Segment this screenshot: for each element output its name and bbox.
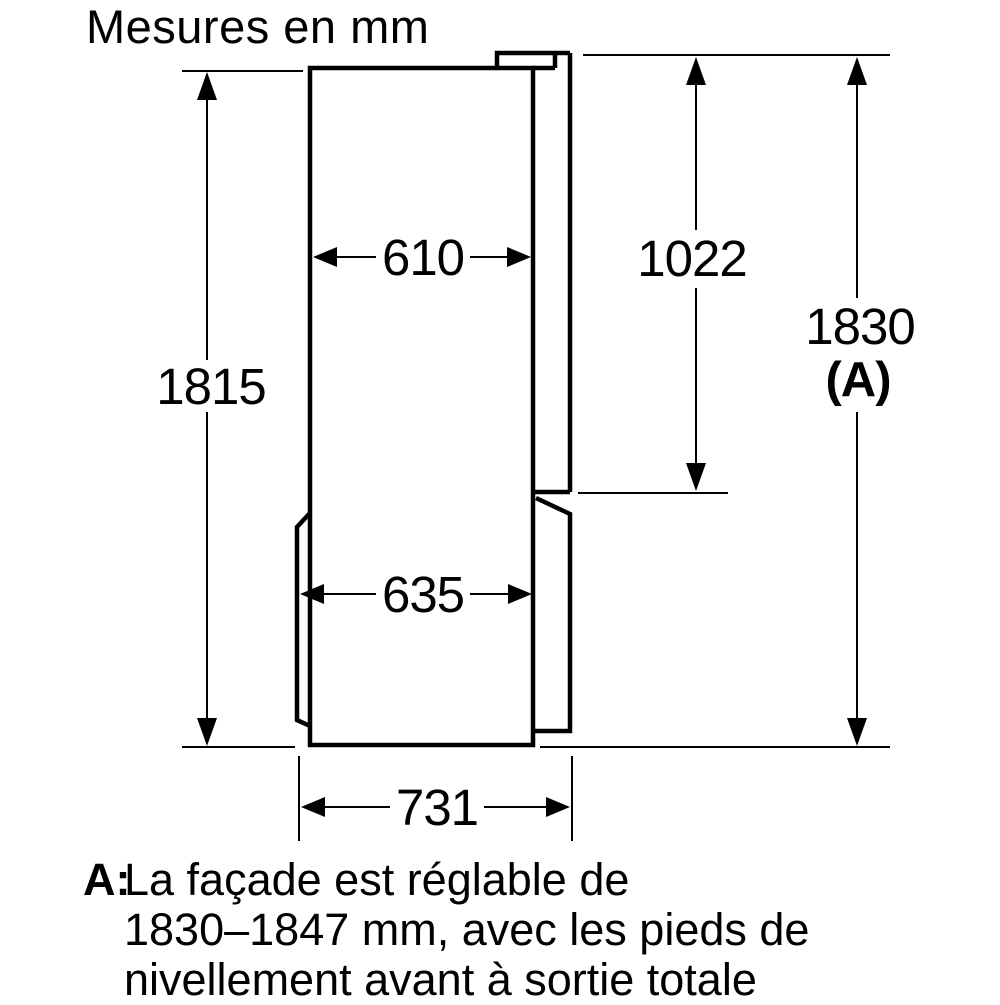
cabinet-body [310,68,533,745]
dimension-appliance-height: 1830 (A) [805,57,914,746]
refrigerator-outline [297,53,570,745]
footnote-text: La façade est réglable de 1830–1847 mm, … [124,855,809,1005]
dimension-cabinet-height: 1815 [156,72,265,746]
dimension-depth-without-door: 635 [300,566,532,623]
dim-label-635: 635 [382,566,464,623]
dimension-diagram: 1815 610 1022 1830 (A) [0,0,1000,1000]
arrow-right-icon [507,247,531,267]
footnote-line: 1830–1847 mm, avec les pieds de [124,905,809,955]
footnote: A: La façade est réglable de 1830–1847 m… [83,855,809,1005]
measurement-diagram-page: Mesures en mm [0,0,1000,1000]
lower-door [535,498,570,731]
dim-label-1022: 1022 [637,230,746,287]
footnote-marker: A: [83,855,130,905]
dim-label-A: (A) [825,353,890,407]
arrow-down-icon [847,718,867,746]
arrow-left-icon [313,247,337,267]
arrow-up-icon [686,57,706,85]
arrow-up-icon [197,72,217,100]
dim-label-731: 731 [396,779,478,836]
footnote-line: La façade est réglable de [124,855,809,905]
arrow-right-icon [508,584,532,604]
arrow-right-icon [546,797,570,817]
arrow-down-icon [686,463,706,491]
dim-label-1830: 1830 [805,298,914,355]
arrow-left-icon [301,797,325,817]
arrow-down-icon [197,718,217,746]
upper-door [533,53,570,492]
dim-label-1815: 1815 [156,358,265,415]
footnote-line: nivellement avant à sortie totale [124,955,809,1005]
dimension-cabinet-depth: 610 [313,229,531,286]
dimension-total-depth: 731 [301,779,570,836]
reference-lines [182,55,890,841]
dim-label-610: 610 [382,229,464,286]
arrow-up-icon [847,57,867,85]
dimension-upper-door-height: 1022 [637,57,746,491]
